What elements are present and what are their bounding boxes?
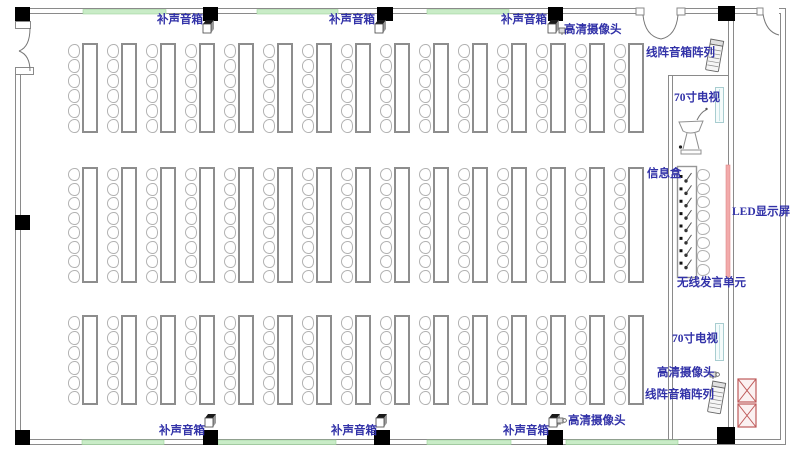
- chair: [458, 331, 470, 345]
- chair: [697, 223, 710, 235]
- chair: [497, 212, 509, 225]
- chair: [497, 168, 509, 181]
- chair: [224, 183, 236, 196]
- chair: [419, 104, 431, 118]
- chair: [614, 89, 626, 103]
- chair: [380, 391, 392, 405]
- chair: [419, 59, 431, 73]
- table: [472, 167, 488, 283]
- chair: [497, 119, 509, 133]
- label-fill-speaker-top-1: 补声音箱: [157, 14, 203, 26]
- chair: [185, 376, 197, 390]
- label-line-array-bottom: 线阵音箱阵列: [645, 389, 714, 401]
- chair: [380, 44, 392, 58]
- chair: [146, 255, 158, 268]
- chair: [497, 59, 509, 73]
- chair: [68, 44, 80, 58]
- chair: [185, 168, 197, 181]
- label-line-array-top: 线阵音箱阵列: [646, 47, 715, 59]
- chair: [185, 241, 197, 254]
- chair: [497, 104, 509, 118]
- chair: [614, 241, 626, 254]
- chair: [185, 74, 197, 88]
- table: [121, 315, 137, 405]
- chair: [614, 346, 626, 360]
- chair: [458, 59, 470, 73]
- table: [121, 167, 137, 283]
- chair: [224, 270, 236, 283]
- chair: [575, 44, 587, 58]
- chair: [302, 44, 314, 58]
- chair: [302, 104, 314, 118]
- chair: [380, 226, 392, 239]
- chair: [536, 316, 548, 330]
- chair: [497, 241, 509, 254]
- chair: [614, 226, 626, 239]
- chair: [107, 255, 119, 268]
- chair: [575, 89, 587, 103]
- table: [199, 43, 215, 133]
- chair: [107, 104, 119, 118]
- chair: [263, 74, 275, 88]
- chair: [263, 119, 275, 133]
- chair: [575, 255, 587, 268]
- chair: [302, 241, 314, 254]
- table: [160, 167, 176, 283]
- chair: [68, 391, 80, 405]
- chair: [419, 361, 431, 375]
- chair: [224, 212, 236, 225]
- chair: [185, 270, 197, 283]
- chair: [263, 361, 275, 375]
- chair: [107, 361, 119, 375]
- chair: [341, 74, 353, 88]
- label-hd-camera-top: 高清摄像头: [564, 24, 622, 36]
- chair: [341, 270, 353, 283]
- chair: [380, 346, 392, 360]
- chair: [341, 241, 353, 254]
- table: [121, 43, 137, 133]
- table: [238, 167, 254, 283]
- chair: [146, 89, 158, 103]
- chair: [185, 89, 197, 103]
- chair: [185, 44, 197, 58]
- chair: [497, 89, 509, 103]
- chair: [497, 391, 509, 405]
- chair: [224, 74, 236, 88]
- chair: [68, 74, 80, 88]
- chair: [224, 376, 236, 390]
- chair: [68, 316, 80, 330]
- chair: [575, 104, 587, 118]
- label-led-screen: LED显示屏: [732, 206, 790, 218]
- chair: [68, 168, 80, 181]
- chair: [185, 119, 197, 133]
- chair: [185, 183, 197, 196]
- chair: [419, 376, 431, 390]
- chair: [68, 104, 80, 118]
- table: [355, 167, 371, 283]
- chair: [68, 212, 80, 225]
- chair: [185, 316, 197, 330]
- chair: [107, 183, 119, 196]
- chair: [458, 361, 470, 375]
- chair: [419, 331, 431, 345]
- chair: [107, 44, 119, 58]
- chair: [263, 168, 275, 181]
- chair: [497, 255, 509, 268]
- chair: [68, 197, 80, 210]
- chair: [185, 226, 197, 239]
- chair: [614, 316, 626, 330]
- chair: [146, 168, 158, 181]
- chair: [536, 89, 548, 103]
- label-tv70-bottom: 70寸电视: [672, 333, 718, 345]
- chair: [536, 391, 548, 405]
- table: [316, 167, 332, 283]
- table: [472, 315, 488, 405]
- chair: [419, 119, 431, 133]
- chair: [224, 361, 236, 375]
- chair: [458, 104, 470, 118]
- chair: [380, 270, 392, 283]
- chair: [146, 241, 158, 254]
- chair: [263, 226, 275, 239]
- table: [511, 167, 527, 283]
- chair: [146, 226, 158, 239]
- chair: [458, 255, 470, 268]
- chair: [224, 331, 236, 345]
- table: [238, 315, 254, 405]
- chair: [697, 169, 710, 181]
- chair: [302, 270, 314, 283]
- chair: [263, 59, 275, 73]
- table: [82, 43, 98, 133]
- table: [316, 315, 332, 405]
- chair: [380, 331, 392, 345]
- chair: [575, 361, 587, 375]
- chair: [458, 316, 470, 330]
- chair: [341, 255, 353, 268]
- chair: [419, 74, 431, 88]
- chair: [341, 361, 353, 375]
- chair: [419, 270, 431, 283]
- chair: [107, 212, 119, 225]
- chair: [185, 391, 197, 405]
- chair: [302, 183, 314, 196]
- chair: [419, 255, 431, 268]
- chair: [224, 44, 236, 58]
- table: [316, 43, 332, 133]
- chair: [263, 183, 275, 196]
- chair: [107, 331, 119, 345]
- label-fill-speaker-bottom-2: 补声音箱: [331, 425, 377, 437]
- chair: [458, 119, 470, 133]
- table: [589, 167, 605, 283]
- chair: [536, 104, 548, 118]
- chair: [419, 197, 431, 210]
- chair: [107, 241, 119, 254]
- chair: [380, 376, 392, 390]
- chair: [419, 316, 431, 330]
- table: [394, 167, 410, 283]
- chair: [263, 197, 275, 210]
- floor-plan: 补声音箱 补声音箱 补声音箱 高清摄像头 线阵音箱阵列 70寸电视 信息盒 LE…: [0, 0, 800, 456]
- table: [472, 43, 488, 133]
- chair: [107, 376, 119, 390]
- chair: [536, 376, 548, 390]
- chair: [614, 331, 626, 345]
- label-hd-camera-bottom: 高清摄像头: [568, 415, 626, 427]
- chair: [497, 44, 509, 58]
- chair: [68, 361, 80, 375]
- chair: [419, 89, 431, 103]
- chair: [419, 391, 431, 405]
- chair: [614, 119, 626, 133]
- table: [628, 43, 644, 133]
- chair: [458, 168, 470, 181]
- chair: [536, 226, 548, 239]
- chair: [224, 226, 236, 239]
- chair: [341, 331, 353, 345]
- chair: [68, 119, 80, 133]
- chair: [419, 241, 431, 254]
- chair: [302, 226, 314, 239]
- table: [511, 43, 527, 133]
- chair: [536, 361, 548, 375]
- table: [277, 43, 293, 133]
- label-tv70-top: 70寸电视: [674, 92, 720, 104]
- chair: [185, 255, 197, 268]
- chair: [380, 59, 392, 73]
- label-fill-speaker-bottom-1: 补声音箱: [159, 425, 205, 437]
- chair: [614, 255, 626, 268]
- chair: [419, 226, 431, 239]
- chair: [575, 212, 587, 225]
- chair: [185, 212, 197, 225]
- table: [394, 315, 410, 405]
- chair: [614, 74, 626, 88]
- chair: [341, 346, 353, 360]
- chair: [224, 391, 236, 405]
- chair: [185, 346, 197, 360]
- chair: [458, 346, 470, 360]
- chair: [458, 89, 470, 103]
- chair: [575, 119, 587, 133]
- chair: [697, 196, 710, 208]
- chair: [419, 168, 431, 181]
- chair: [107, 59, 119, 73]
- table: [199, 315, 215, 405]
- chair: [697, 250, 710, 262]
- chair: [68, 331, 80, 345]
- chair: [224, 168, 236, 181]
- chair: [107, 89, 119, 103]
- table: [550, 43, 566, 133]
- chair: [380, 74, 392, 88]
- chair: [224, 89, 236, 103]
- chair: [497, 183, 509, 196]
- table: [550, 315, 566, 405]
- table: [433, 167, 449, 283]
- chair: [146, 44, 158, 58]
- chair: [536, 119, 548, 133]
- chair: [68, 346, 80, 360]
- chair: [224, 104, 236, 118]
- chair: [146, 183, 158, 196]
- chair: [146, 119, 158, 133]
- label-info-box: 信息盒: [647, 168, 682, 180]
- chair: [614, 104, 626, 118]
- table: [550, 167, 566, 283]
- chair: [68, 255, 80, 268]
- chair: [146, 74, 158, 88]
- chair: [380, 197, 392, 210]
- table: [628, 315, 644, 405]
- table: [511, 315, 527, 405]
- chair: [146, 104, 158, 118]
- chair: [536, 44, 548, 58]
- chair: [263, 104, 275, 118]
- chair: [146, 391, 158, 405]
- chair: [575, 316, 587, 330]
- chair: [697, 210, 710, 222]
- label-fill-speaker-top-2: 补声音箱: [329, 14, 375, 26]
- chair: [263, 89, 275, 103]
- table: [433, 315, 449, 405]
- chair: [536, 168, 548, 181]
- label-wireless-unit: 无线发言单元: [677, 277, 746, 289]
- chair: [224, 255, 236, 268]
- chair: [68, 89, 80, 103]
- chair: [341, 168, 353, 181]
- chair: [536, 255, 548, 268]
- chair: [146, 316, 158, 330]
- chair: [302, 197, 314, 210]
- chair: [419, 44, 431, 58]
- chair: [497, 316, 509, 330]
- chair: [536, 331, 548, 345]
- chair: [536, 74, 548, 88]
- chair: [341, 226, 353, 239]
- chair: [575, 74, 587, 88]
- chair: [146, 346, 158, 360]
- chair: [146, 212, 158, 225]
- chair: [185, 197, 197, 210]
- table: [277, 167, 293, 283]
- chair: [419, 212, 431, 225]
- chair: [614, 183, 626, 196]
- chair: [536, 59, 548, 73]
- chair: [614, 361, 626, 375]
- chair: [536, 212, 548, 225]
- chair: [614, 59, 626, 73]
- chair: [146, 197, 158, 210]
- chair: [224, 241, 236, 254]
- chair: [224, 119, 236, 133]
- chair: [224, 59, 236, 73]
- chair: [614, 391, 626, 405]
- chair: [68, 376, 80, 390]
- chair: [536, 270, 548, 283]
- chair: [107, 226, 119, 239]
- table: [238, 43, 254, 133]
- chair: [380, 241, 392, 254]
- table: [433, 43, 449, 133]
- chair: [107, 74, 119, 88]
- chair: [146, 270, 158, 283]
- chair: [263, 346, 275, 360]
- chair: [575, 346, 587, 360]
- chair: [263, 270, 275, 283]
- chair: [341, 212, 353, 225]
- chair: [614, 44, 626, 58]
- chair: [341, 183, 353, 196]
- chair: [497, 376, 509, 390]
- table: [82, 167, 98, 283]
- chair: [536, 183, 548, 196]
- chair: [380, 212, 392, 225]
- chair: [146, 59, 158, 73]
- chair: [107, 168, 119, 181]
- chair: [419, 183, 431, 196]
- label-fill-speaker-bottom-3: 补声音箱: [503, 425, 549, 437]
- chair: [302, 212, 314, 225]
- chair: [302, 255, 314, 268]
- chair: [458, 270, 470, 283]
- chair: [458, 44, 470, 58]
- chair: [458, 212, 470, 225]
- chair: [302, 331, 314, 345]
- chair: [107, 270, 119, 283]
- chair: [380, 89, 392, 103]
- chair: [614, 212, 626, 225]
- chair: [302, 59, 314, 73]
- table: [277, 315, 293, 405]
- chair: [575, 391, 587, 405]
- chair: [341, 104, 353, 118]
- label-hd-camera-stage: 高清摄像头: [657, 367, 715, 379]
- chair: [263, 44, 275, 58]
- chair: [380, 119, 392, 133]
- chair: [302, 119, 314, 133]
- chair: [302, 316, 314, 330]
- chair: [697, 237, 710, 249]
- chair: [575, 168, 587, 181]
- table: [160, 315, 176, 405]
- chair: [302, 346, 314, 360]
- table: [82, 315, 98, 405]
- chair: [263, 316, 275, 330]
- chair: [575, 270, 587, 283]
- chair: [380, 183, 392, 196]
- chair: [575, 197, 587, 210]
- chair: [185, 361, 197, 375]
- chair: [614, 270, 626, 283]
- chair: [497, 361, 509, 375]
- chair: [107, 391, 119, 405]
- chair: [575, 183, 587, 196]
- chair: [536, 197, 548, 210]
- chair: [575, 241, 587, 254]
- chair: [497, 226, 509, 239]
- chair: [302, 376, 314, 390]
- audience-seating: [0, 0, 800, 456]
- chair: [419, 346, 431, 360]
- chair: [341, 44, 353, 58]
- chair: [458, 226, 470, 239]
- chair: [380, 104, 392, 118]
